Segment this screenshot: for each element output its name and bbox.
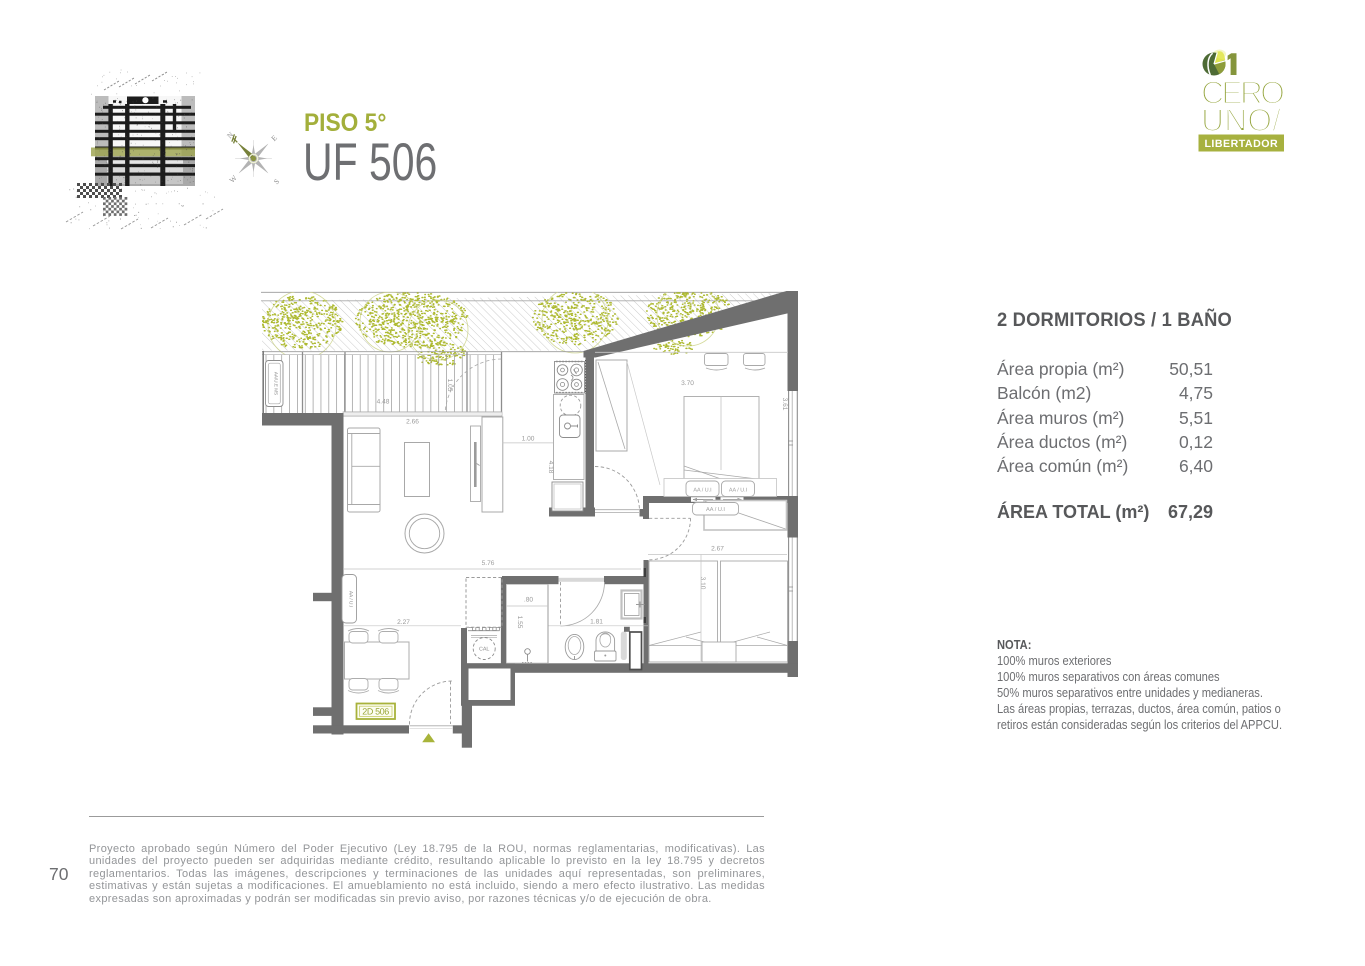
svg-text:5.76: 5.76: [482, 560, 495, 567]
svg-text:AA / U.I: AA / U.I: [706, 506, 725, 513]
svg-text:2.66: 2.66: [406, 419, 419, 426]
svg-text:1.55: 1.55: [516, 616, 523, 629]
svg-text:4.18: 4.18: [547, 461, 554, 474]
svg-text:2.67: 2.67: [711, 546, 724, 553]
svg-text:AA / U.I: AA / U.I: [729, 488, 747, 494]
svg-text:LIBERTADOR: LIBERTADOR: [1204, 138, 1278, 150]
svg-text:S: S: [272, 177, 281, 186]
svg-text:AA/U.E MS: AA/U.E MS: [274, 372, 279, 395]
svg-text:W: W: [227, 173, 239, 185]
svg-text:1.81: 1.81: [590, 619, 603, 626]
svg-text:2D 506: 2D 506: [362, 706, 389, 716]
svg-text:4.48: 4.48: [377, 399, 390, 406]
svg-text:1.05: 1.05: [446, 379, 453, 392]
svg-text:UNO/: UNO/: [1201, 102, 1284, 138]
svg-text:3.61: 3.61: [781, 398, 788, 411]
svg-text:CAL: CAL: [479, 647, 490, 653]
svg-text:E: E: [269, 133, 279, 143]
svg-text:AA / U.I: AA / U.I: [348, 591, 354, 607]
svg-text:AA / U.I: AA / U.I: [693, 488, 711, 494]
svg-text:2.27: 2.27: [397, 619, 410, 626]
svg-text:3.70: 3.70: [681, 380, 694, 387]
svg-text:1.00: 1.00: [522, 436, 535, 443]
svg-text:.80: .80: [524, 597, 533, 604]
svg-text:3.10: 3.10: [699, 577, 706, 590]
